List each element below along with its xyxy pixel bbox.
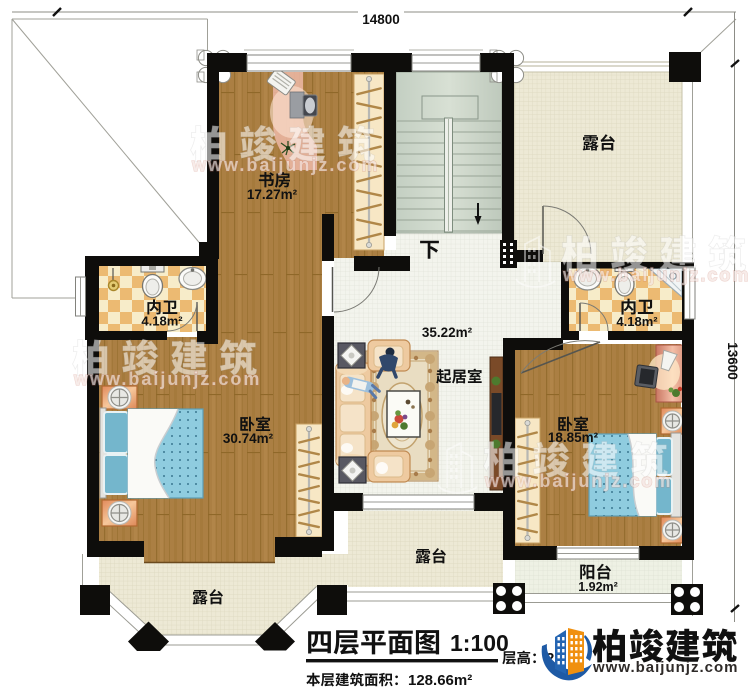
svg-text:17.27m²: 17.27m² <box>247 187 298 202</box>
svg-text:www.baijunjz.com: www.baijunjz.com <box>592 659 738 676</box>
svg-text:35.22m²: 35.22m² <box>422 325 473 340</box>
svg-text:1:100: 1:100 <box>450 630 509 656</box>
svg-text:1.92m²: 1.92m² <box>578 580 618 594</box>
svg-text:30.74m²: 30.74m² <box>223 431 274 446</box>
svg-text:13600: 13600 <box>725 342 740 380</box>
svg-text:4.18m²: 4.18m² <box>141 314 183 329</box>
svg-text:4.18m²: 4.18m² <box>616 314 658 329</box>
svg-text:14800: 14800 <box>362 12 400 27</box>
svg-text:128.66m²: 128.66m² <box>408 672 472 689</box>
